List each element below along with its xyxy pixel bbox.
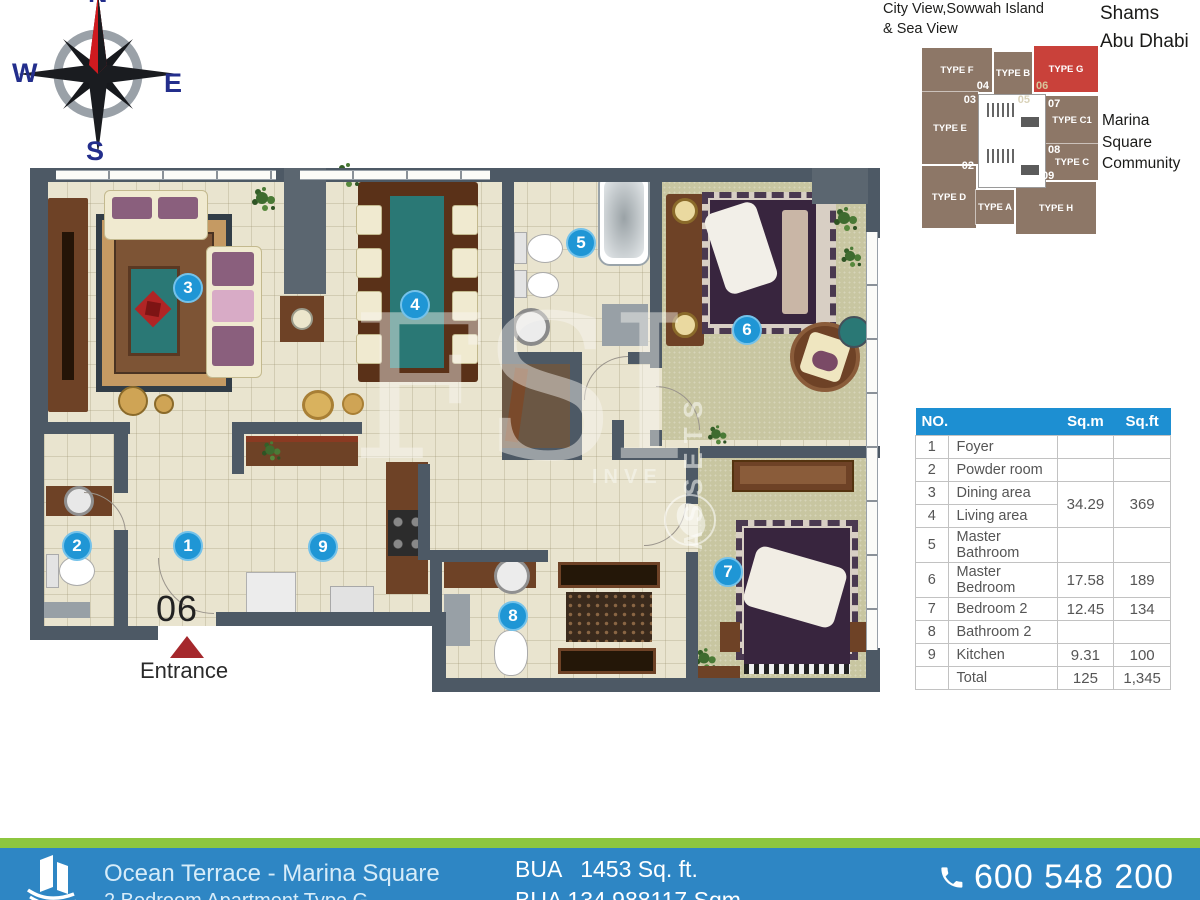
wall-segment — [700, 446, 880, 458]
contact-phone: 600 548 200 — [938, 858, 1174, 897]
toilet-bowl — [527, 234, 563, 263]
floor-stool — [342, 393, 364, 415]
plan-outside-mask — [30, 640, 158, 700]
cell-sqm-merged: 34.29 — [1057, 482, 1114, 528]
keyplan-unit-type-c1: TYPE C107 — [1046, 96, 1098, 144]
cell-no: 9 — [916, 644, 949, 667]
wall-segment — [502, 448, 582, 460]
room-badge-8: 8 — [498, 601, 528, 631]
table-row-bedroom-2: 7 Bedroom 2 12.45 134 — [916, 598, 1171, 621]
cell-name: Bathroom 2 — [948, 621, 1057, 644]
project-title: Ocean Terrace - Marina Square — [104, 860, 440, 888]
view-caption: City View,Sowwah Island & Sea View — [883, 0, 1044, 39]
unit-label: TYPE A — [978, 202, 1012, 213]
dining-chair — [452, 291, 478, 321]
plant — [699, 653, 710, 664]
cell-sqm — [1057, 436, 1114, 459]
col-header-sqft: Sq.ft — [1114, 408, 1171, 436]
room-badge-1: 1 — [173, 531, 203, 561]
cell-sqm: 125 — [1057, 667, 1114, 690]
bua-sqm-text: BUA 134.988117 Sqm — [515, 887, 741, 900]
table-row-dining-area: 3 Dining area 34.29 369 — [916, 482, 1171, 505]
keyplan-unit-type-h: TYPE H09 — [1016, 182, 1096, 234]
cell-sqm: 12.45 — [1057, 598, 1114, 621]
sink — [494, 558, 530, 594]
phone-number: 600 548 200 — [974, 858, 1174, 897]
cell-sqft-merged: 369 — [1114, 482, 1171, 528]
window — [866, 232, 878, 650]
unit-number: 01 — [980, 176, 992, 188]
cell-no: 3 — [916, 482, 949, 505]
plant — [256, 192, 268, 204]
compass-e-label: E — [164, 68, 182, 99]
sofa-cushion — [212, 290, 254, 322]
wall-segment — [216, 612, 434, 626]
dining-chair — [356, 205, 382, 235]
cell-no: 1 — [916, 436, 949, 459]
keyplan-elevator — [1021, 165, 1039, 175]
entrance-arrow-icon — [170, 636, 204, 658]
bed2-trim — [744, 664, 850, 674]
table-row-foyer: 1 Foyer — [916, 436, 1171, 459]
cell-no: 6 — [916, 563, 949, 598]
shower-mat — [444, 594, 470, 646]
cell-no — [916, 667, 949, 690]
unit-label: TYPE D — [932, 192, 966, 203]
keyplan-core — [978, 94, 1046, 188]
wardrobe-cabinet — [558, 648, 656, 674]
bathtub-basin — [604, 178, 644, 258]
room-badge-6: 6 — [732, 315, 762, 345]
table-row-bathroom-2: 8 Bathroom 2 — [916, 621, 1171, 644]
wall-segment — [650, 430, 662, 446]
location-line2: Abu Dhabi — [1100, 28, 1189, 56]
unit-label: TYPE B — [996, 68, 1030, 79]
side-table — [154, 394, 174, 414]
keyplan-unit-type-b: TYPE B05 — [994, 52, 1032, 94]
location-line1: Shams — [1100, 0, 1189, 28]
wall-segment — [30, 430, 44, 640]
keyplan-stairs — [987, 103, 1017, 117]
col-header-sqm: Sq.m — [1057, 408, 1114, 436]
wall-segment — [30, 626, 158, 640]
cell-sqft — [1114, 528, 1171, 563]
room-badge-4: 4 — [400, 290, 430, 320]
wall-segment — [232, 422, 244, 474]
table-row-powder-room: 2 Powder room — [916, 459, 1171, 482]
decor-bowl — [291, 308, 313, 330]
cell-name: Bedroom 2 — [948, 598, 1057, 621]
plant — [711, 429, 721, 439]
compass-rose: N W E S — [12, 0, 188, 176]
dishwasher — [330, 586, 374, 614]
community-caption: Marina Square Community — [1102, 110, 1200, 175]
toilet-tank — [514, 232, 527, 264]
wall-segment — [432, 678, 880, 692]
closet-rug — [566, 592, 652, 642]
flower-centerpiece-inner — [145, 301, 161, 317]
cell-name: Living area — [948, 505, 1057, 528]
room-badge-3: 3 — [173, 273, 203, 303]
cell-name: Dining area — [948, 482, 1057, 505]
dining-chair — [452, 334, 478, 364]
table-row-master-bathroom: 5 Master Bathroom — [916, 528, 1171, 563]
cell-no: 7 — [916, 598, 949, 621]
unit-number: 04 — [977, 80, 989, 92]
room-badge-5: 5 — [566, 228, 596, 258]
unit-label: TYPE F — [940, 65, 973, 76]
sofa-cushion — [112, 197, 152, 219]
wall-segment — [244, 422, 362, 434]
wall-segment — [686, 448, 698, 504]
nightstand — [720, 622, 740, 652]
toilet-bowl — [494, 630, 528, 676]
wardrobe-cabinet — [558, 562, 660, 588]
keyplan-unit-type-e: TYPE E03 — [922, 92, 978, 164]
window — [300, 170, 490, 180]
unit-number: 03 — [964, 94, 976, 106]
unit-number: 09 — [1042, 170, 1054, 182]
shower-mat — [44, 602, 90, 618]
wall-segment — [30, 168, 48, 430]
entrance-label: Entrance — [140, 658, 228, 684]
sofa-cushion — [158, 197, 198, 219]
floor-stool — [302, 390, 334, 420]
wall-segment — [418, 464, 430, 560]
wall-block — [812, 168, 868, 204]
toilet-tank — [46, 554, 59, 588]
unit-label: TYPE G — [1049, 64, 1084, 75]
wall-segment — [866, 168, 880, 238]
developer-logo-icon — [24, 852, 96, 900]
wall-segment — [650, 168, 662, 368]
cell-sqft: 134 — [1114, 598, 1171, 621]
table-row-kitchen: 9 Kitchen 9.31 100 — [916, 644, 1171, 667]
cell-name: Foyer — [948, 436, 1057, 459]
bath-mat — [602, 304, 648, 346]
cell-no: 5 — [916, 528, 949, 563]
bidet-tank — [514, 270, 527, 298]
keyplan-stairs — [987, 149, 1017, 163]
sink — [512, 308, 550, 346]
wall-segment — [114, 422, 128, 493]
wall-segment — [114, 530, 128, 640]
compass-n-label: N — [88, 0, 108, 9]
table-runner — [390, 196, 444, 368]
unit-label: TYPE C — [1055, 157, 1089, 168]
cell-no: 8 — [916, 621, 949, 644]
cell-sqft: 1,345 — [1114, 667, 1171, 690]
cell-sqm — [1057, 459, 1114, 482]
wall-segment — [628, 352, 662, 364]
col-header-no: NO. — [916, 408, 1058, 436]
cell-name: Total — [948, 667, 1057, 690]
compass-s-label: S — [86, 136, 104, 167]
sofa-cushion — [212, 326, 254, 366]
kitchen-counter — [246, 436, 358, 466]
bidet-bowl — [527, 272, 559, 298]
cell-sqft — [1114, 621, 1171, 644]
wall-segment — [502, 352, 582, 364]
cell-name: Master Bathroom — [948, 528, 1057, 563]
wall-segment — [430, 550, 548, 562]
unit-number: 06 — [1036, 80, 1048, 92]
unit-number-label: 06 — [156, 588, 198, 630]
cell-sqm: 17.58 — [1057, 563, 1114, 598]
bua-sqft-text: BUA 1453 Sq. ft. — [515, 856, 698, 883]
keyplan-unit-type-g-highlight: TYPE G06 — [1034, 46, 1098, 92]
side-table — [118, 386, 148, 416]
cell-sqm — [1057, 621, 1114, 644]
keyplan-unit-type-a: TYPE A01 — [976, 190, 1014, 224]
nightstand — [850, 622, 866, 652]
cell-name: Powder room — [948, 459, 1057, 482]
nightstand — [672, 312, 698, 338]
nightstand — [672, 198, 698, 224]
building-key-plan: TYPE F04 TYPE B05 TYPE G06 TYPE E03 TYPE… — [920, 42, 1100, 234]
community-line1: Marina Square — [1102, 110, 1200, 153]
cell-sqft — [1114, 459, 1171, 482]
floorplan-poster: N W E S City View,Sowwah Island & Sea Vi… — [0, 0, 1200, 900]
cell-sqft — [1114, 436, 1171, 459]
keyplan-unit-type-d: TYPE D02 — [922, 166, 976, 228]
area-table-header-row: NO. Sq.m Sq.ft — [916, 408, 1171, 436]
wall-segment — [570, 364, 582, 450]
table-row-total: Total 125 1,345 — [916, 667, 1171, 690]
unit-label: TYPE C1 — [1052, 115, 1092, 126]
cell-sqm: 9.31 — [1057, 644, 1114, 667]
compass-w-label: W — [12, 58, 37, 89]
dining-chair — [452, 205, 478, 235]
dining-chair — [356, 291, 382, 321]
unit-number: 08 — [1048, 144, 1060, 156]
cell-sqm — [1057, 528, 1114, 563]
cell-sqft: 189 — [1114, 563, 1171, 598]
keyplan-unit-type-f: TYPE F04 — [922, 48, 992, 92]
dresser-top — [740, 466, 846, 484]
cell-name: Master Bedroom — [948, 563, 1057, 598]
view-caption-line1: City View,Sowwah Island — [883, 0, 1044, 20]
cell-no: 2 — [916, 459, 949, 482]
wall-segment — [686, 552, 698, 692]
location-caption: Shams Abu Dhabi — [1100, 0, 1189, 55]
table-row-master-bedroom: 6 Master Bedroom 17.58 189 — [916, 563, 1171, 598]
unit-label: TYPE E — [933, 123, 967, 134]
view-caption-line2: & Sea View — [883, 20, 1044, 40]
cell-no: 4 — [916, 505, 949, 528]
room-badge-7: 7 — [713, 557, 743, 587]
phone-handset-icon — [938, 864, 965, 891]
plant — [845, 251, 855, 261]
plant — [265, 445, 275, 455]
room-badge-2: 2 — [62, 531, 92, 561]
community-line2: Community — [1102, 153, 1200, 175]
sofa-cushion — [212, 252, 254, 286]
tv-console-slot — [62, 232, 74, 380]
unit-number: 05 — [1018, 94, 1030, 106]
unit-number: 07 — [1048, 98, 1060, 110]
dining-chair — [356, 248, 382, 278]
footer-accent-stripe — [0, 838, 1200, 848]
unit-label: TYPE H — [1039, 203, 1073, 214]
project-subtitle: 2 Bedroom Apartment Type G — [104, 890, 368, 900]
room-badge-9: 9 — [308, 532, 338, 562]
dining-chair — [356, 334, 382, 364]
wall-segment — [502, 168, 514, 364]
fridge — [246, 572, 296, 614]
keyplan-elevator — [1021, 117, 1039, 127]
cell-sqft: 100 — [1114, 644, 1171, 667]
area-table: NO. Sq.m Sq.ft 1 Foyer 2 Powder room 3 D… — [915, 408, 1171, 690]
wall-pillar — [284, 168, 326, 294]
dining-chair — [452, 248, 478, 278]
unit-number: 02 — [962, 160, 974, 172]
bed-sheet — [782, 210, 808, 314]
plan-outside-mask — [216, 626, 432, 700]
plant — [838, 212, 850, 224]
window — [56, 170, 276, 180]
cell-name: Kitchen — [948, 644, 1057, 667]
